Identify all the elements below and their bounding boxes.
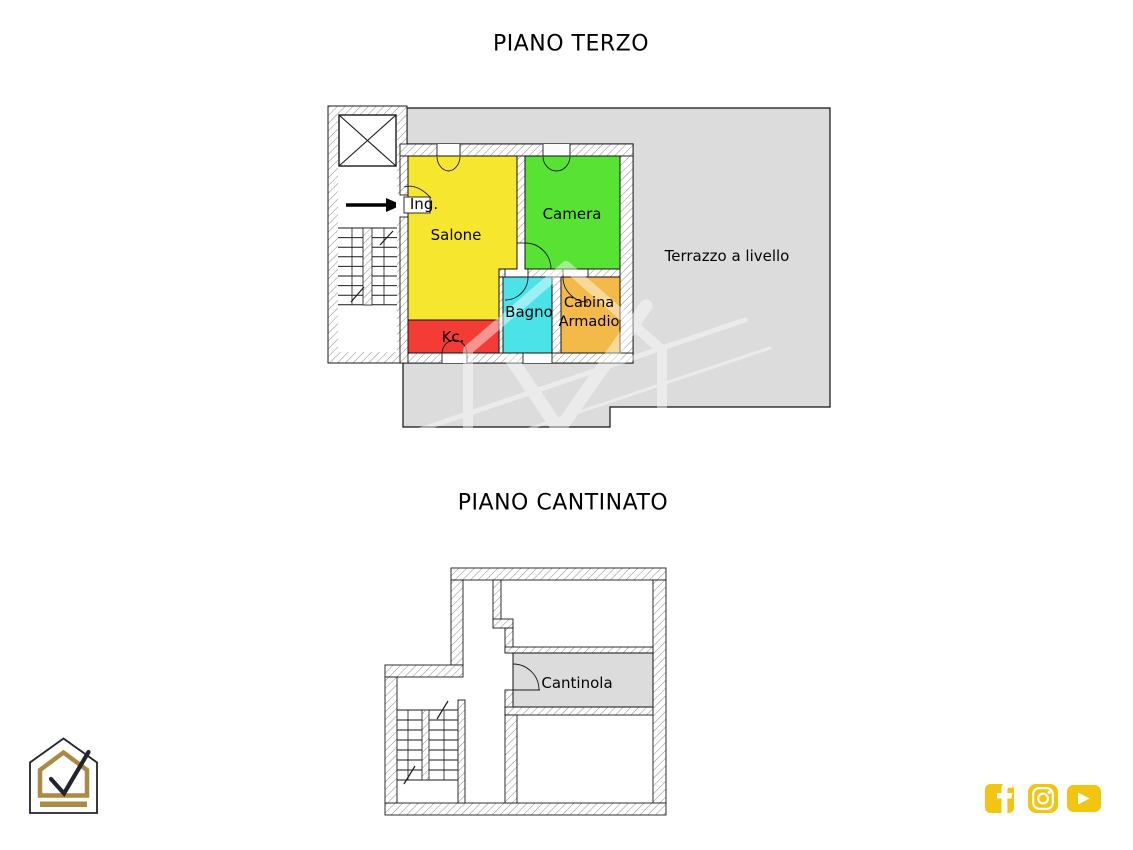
floor-plan-terzo (328, 106, 830, 462)
agency-logo (30, 739, 97, 814)
label-cabina-line1: Cabina (559, 294, 620, 313)
instagram-icon[interactable] (1028, 784, 1058, 813)
label-cabina-line2: Armadio (559, 313, 620, 332)
elevator-shaft (339, 115, 396, 166)
label-kc: Kc. (442, 328, 465, 346)
title-piano-terzo: PIANO TERZO (493, 32, 649, 57)
stairs-cantinato (397, 701, 458, 784)
floor-plan-cantinato (385, 568, 666, 815)
floor-plan-page: PIANO TERZO Ing. Salone Kc. Camera Bagno… (0, 0, 1133, 850)
label-salone: Salone (431, 226, 482, 244)
youtube-icon[interactable] (1067, 785, 1101, 812)
logo-base-bar (40, 802, 87, 808)
stairwell-terzo (328, 106, 408, 363)
floor-plan-drawing (0, 0, 1133, 850)
logo-inner-house (40, 753, 87, 796)
title-piano-cantinato: PIANO CANTINATO (458, 491, 668, 516)
label-terrazzo: Terrazzo a livello (665, 247, 790, 265)
label-ing: Ing. (410, 195, 438, 213)
label-bagno: Bagno (505, 303, 553, 321)
label-cantinola: Cantinola (541, 674, 612, 692)
social-icons (985, 783, 1101, 814)
facebook-icon[interactable] (985, 783, 1014, 814)
label-camera: Camera (543, 205, 602, 223)
label-cabina-armadio: Cabina Armadio (559, 294, 620, 332)
